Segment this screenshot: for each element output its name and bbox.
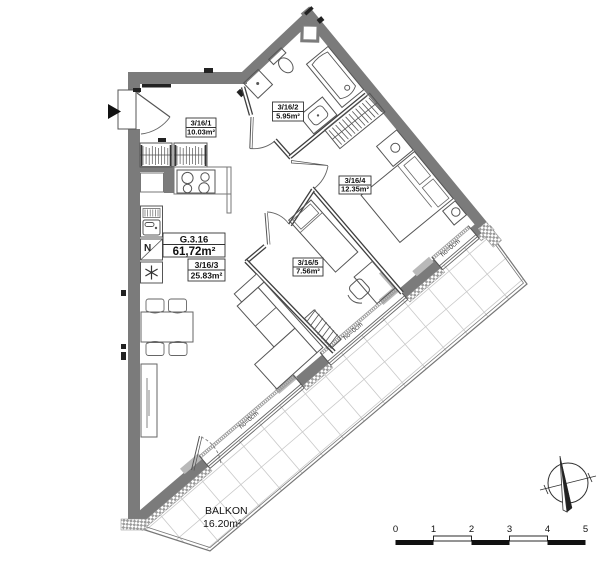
svg-text:25.83m²: 25.83m² <box>191 271 223 281</box>
svg-text:3: 3 <box>507 524 512 535</box>
svg-text:5.95m²: 5.95m² <box>276 112 300 121</box>
svg-text:3/16/2: 3/16/2 <box>278 103 299 112</box>
svg-text:5: 5 <box>583 524 588 535</box>
svg-text:0: 0 <box>393 524 398 535</box>
svg-text:12.35m²: 12.35m² <box>341 185 369 194</box>
svg-text:BALKON: BALKON <box>205 505 248 517</box>
svg-text:3/16/1: 3/16/1 <box>191 119 212 128</box>
svg-text:G.3.16: G.3.16 <box>180 235 209 246</box>
svg-text:3/16/3: 3/16/3 <box>195 260 219 270</box>
svg-text:7.56m²: 7.56m² <box>296 267 320 276</box>
svg-text:1: 1 <box>431 524 436 535</box>
svg-text:61,72m²: 61,72m² <box>173 246 216 258</box>
svg-text:16.20m²: 16.20m² <box>203 518 242 530</box>
svg-text:N: N <box>144 243 151 254</box>
svg-text:10.03m²: 10.03m² <box>187 128 215 137</box>
svg-text:4: 4 <box>545 524 550 535</box>
svg-text:2: 2 <box>469 524 474 535</box>
